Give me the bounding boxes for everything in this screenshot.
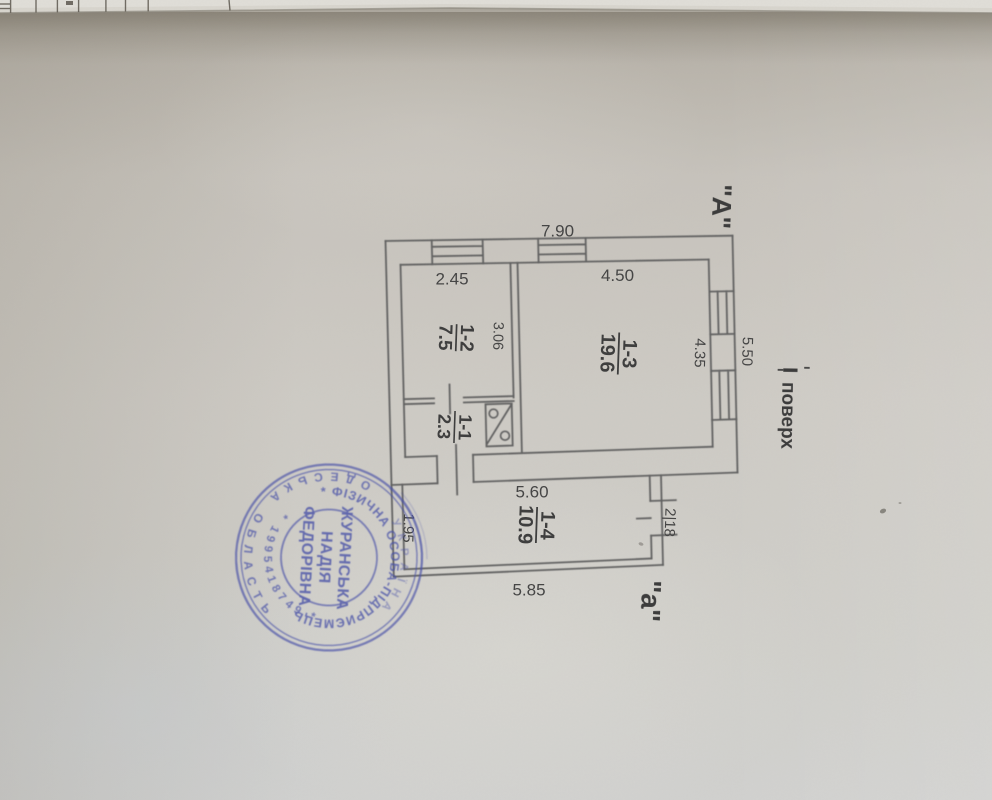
svg-text:НАДІЯ: НАДІЯ [315, 531, 335, 584]
